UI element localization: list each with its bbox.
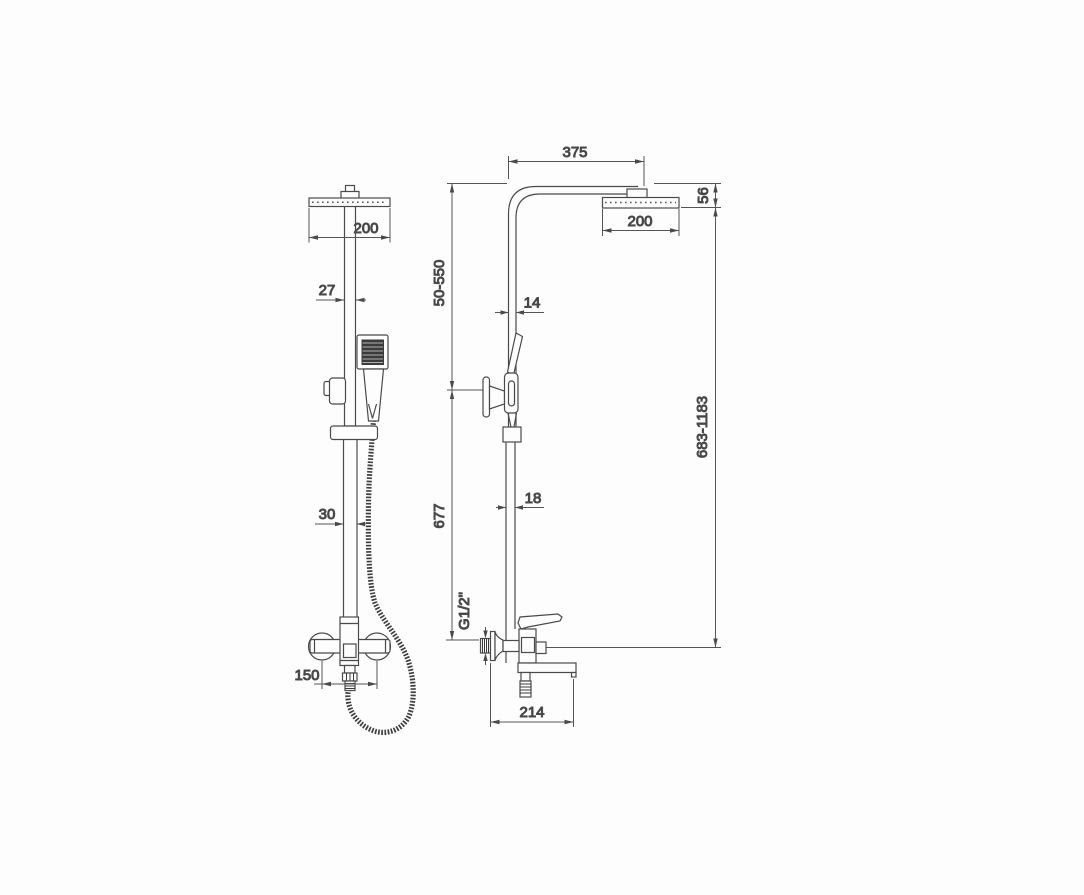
side-slider-block <box>503 427 521 442</box>
dim-side-head-depth: 200 <box>627 213 652 230</box>
dim-side-overall-height-range: 683-1183 <box>694 396 711 458</box>
front-handshower-face <box>362 340 385 366</box>
dim-front-column-width: 27 <box>319 282 336 299</box>
side-spout-lip <box>572 673 577 678</box>
technical-drawing-page: 200 27 30 150 <box>0 0 1084 895</box>
front-outlet-neck <box>345 666 356 674</box>
dim-front-head-width: 200 <box>353 220 378 237</box>
side-mixer-cartridge <box>522 638 535 653</box>
front-slider-bar <box>331 426 378 440</box>
front-hose-stub <box>345 681 355 691</box>
drawing-canvas: 200 27 30 150 <box>0 0 1084 895</box>
side-spout <box>518 663 576 673</box>
side-hose-neck <box>521 673 530 682</box>
side-diverter-knob <box>536 642 546 654</box>
dim-side-spout-reach: 214 <box>519 704 544 721</box>
dim-front-mount-spacing: 150 <box>294 667 319 684</box>
front-mixer <box>309 617 391 691</box>
front-shower-hose <box>348 420 413 732</box>
front-holder-bracket <box>330 378 346 404</box>
side-holder-flange <box>483 377 490 417</box>
side-mixer-lever <box>518 614 562 629</box>
side-head-connector <box>627 189 647 198</box>
front-diverter-knob <box>344 644 357 658</box>
side-mixer <box>481 614 577 697</box>
dim-side-lower-pipe-depth: 18 <box>525 490 542 507</box>
side-view: 375 200 56 683-1183 <box>431 144 721 727</box>
side-hose-stub <box>520 681 531 697</box>
front-view: 200 27 30 150 <box>294 186 413 733</box>
dim-side-head-height: 56 <box>695 187 712 204</box>
side-holder-slot <box>509 381 515 406</box>
dim-front-lower-column-width: 30 <box>319 506 336 523</box>
front-mixer-body <box>340 617 359 666</box>
side-handshower <box>508 333 523 375</box>
dim-side-arm-reach: 375 <box>562 144 587 161</box>
dim-side-connection-thread: G1/2" <box>456 592 473 630</box>
side-dimensions: 375 200 56 683-1183 <box>431 144 721 727</box>
dim-side-upper-adjust-range: 50-550 <box>431 260 448 307</box>
side-holder-stem <box>490 386 505 409</box>
dim-side-upper-pipe-depth: 14 <box>524 295 541 312</box>
front-lower-column <box>344 439 358 618</box>
dim-side-lower-column-length: 677 <box>431 503 448 528</box>
